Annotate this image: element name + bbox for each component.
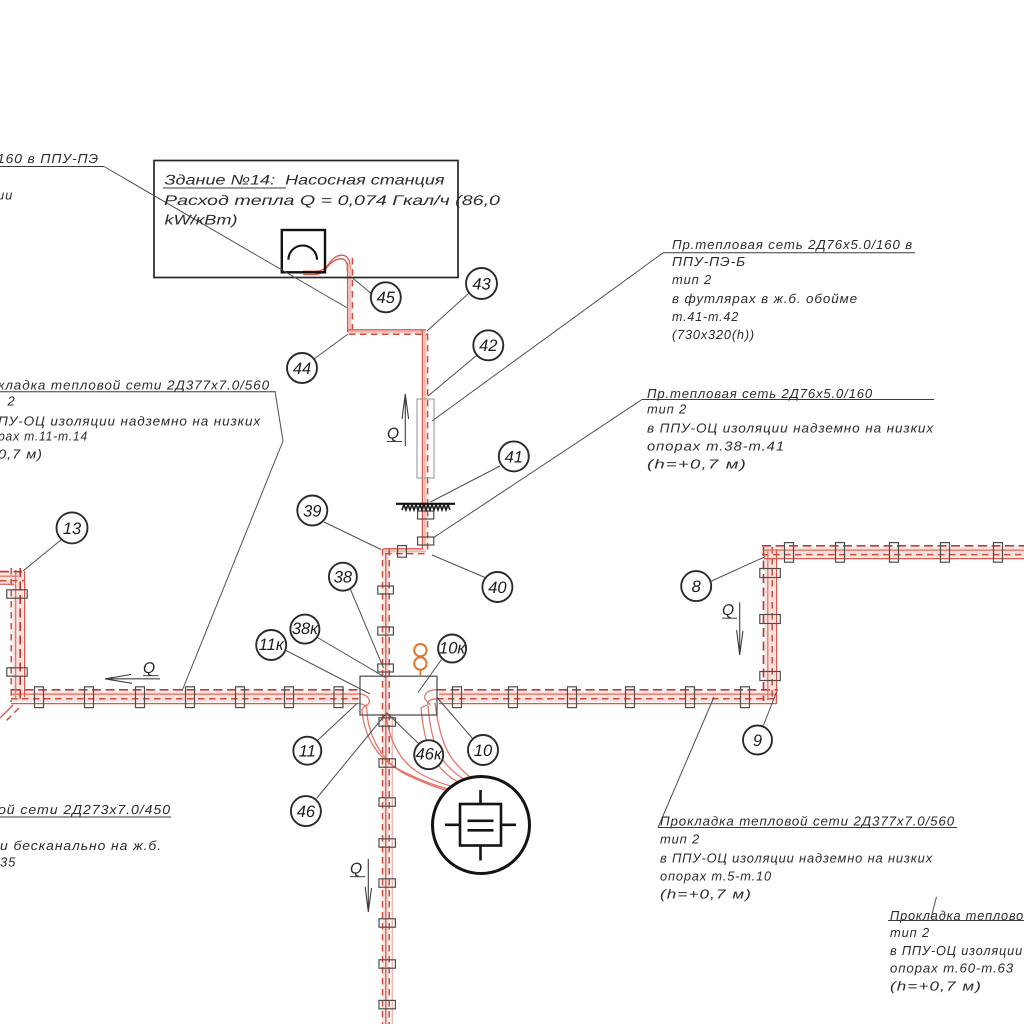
svg-text:44: 44 bbox=[293, 360, 311, 378]
svg-text:43: 43 bbox=[472, 275, 491, 293]
svg-text:38к: 38к bbox=[292, 620, 319, 638]
svg-text:41: 41 bbox=[505, 448, 523, 466]
svg-text:11: 11 bbox=[299, 743, 316, 761]
svg-text:10к: 10к bbox=[439, 640, 466, 658]
svg-text:ППУ-ПЭ-Б: ППУ-ПЭ-Б bbox=[672, 254, 746, 269]
svg-text:и бесканально на ж.б.: и бесканально на ж.б. bbox=[0, 838, 162, 853]
svg-text:в ППУ-ОЦ изоляции надземно на: в ППУ-ОЦ изоляции надземно на низких bbox=[660, 850, 933, 865]
svg-text:46к: 46к bbox=[416, 746, 443, 764]
svg-text:45: 45 bbox=[377, 289, 396, 307]
svg-text:тип 2: тип 2 bbox=[660, 832, 700, 847]
svg-text:опорах т.60-т.63: опорах т.60-т.63 bbox=[890, 960, 1014, 975]
svg-text:46: 46 bbox=[297, 803, 316, 821]
svg-text:0,7 м): 0,7 м) bbox=[0, 447, 43, 462]
svg-text:опорах т.5-т.10: опорах т.5-т.10 bbox=[660, 868, 772, 883]
svg-text:Q: Q bbox=[387, 426, 399, 443]
svg-text:Здание №14: Насосная станция: Здание №14: Насосная станция bbox=[165, 172, 446, 188]
svg-text:(h=+0,7 м): (h=+0,7 м) bbox=[647, 457, 747, 472]
svg-text:в ППУ-ОЦ изоляции надземно на: в ППУ-ОЦ изоляции надземно на низких bbox=[647, 421, 934, 436]
svg-text:вой сети 2Д273х7.0/450: вой сети 2Д273х7.0/450 bbox=[0, 802, 171, 817]
svg-text:кладка тепловой сети 2Д377х7.0: кладка тепловой сети 2Д377х7.0/560 bbox=[0, 378, 270, 393]
svg-text:опорах т.38-т.41: опорах т.38-т.41 bbox=[647, 439, 785, 454]
svg-text:38: 38 bbox=[334, 569, 353, 587]
svg-text:рах т.11-т.14: рах т.11-т.14 bbox=[0, 429, 88, 444]
svg-text:тип 2: тип 2 bbox=[647, 402, 687, 417]
svg-text:в футлярах в ж.б. обойме: в футлярах в ж.б. обойме bbox=[672, 291, 858, 306]
svg-text:(730х320(h)): (730х320(h)) bbox=[672, 327, 755, 342]
svg-text:в ППУ-ОЦ изоляции: в ППУ-ОЦ изоляции bbox=[890, 943, 1023, 958]
svg-text:Расход тепла Q = 0,074 Гкал/ч: Расход тепла Q = 0,074 Гкал/ч (86,0 bbox=[164, 192, 500, 208]
svg-text:Q: Q bbox=[722, 602, 734, 619]
svg-text:42: 42 bbox=[479, 337, 497, 355]
svg-text:11к: 11к bbox=[259, 636, 285, 654]
svg-text:10: 10 bbox=[474, 742, 493, 760]
svg-text:Прокладка тепловой сети 2Д377х: Прокладка тепловой сети 2Д377х7.0/560 bbox=[660, 814, 955, 829]
svg-text:8: 8 bbox=[692, 578, 702, 596]
svg-text:Q: Q bbox=[350, 861, 362, 878]
svg-text:т.41-т.42: т.41-т.42 bbox=[672, 309, 739, 324]
svg-text:(h=+0,7 м): (h=+0,7 м) bbox=[660, 886, 752, 901]
svg-text:2: 2 bbox=[7, 394, 16, 409]
svg-text:39: 39 bbox=[303, 502, 321, 520]
svg-text:35: 35 bbox=[0, 855, 16, 870]
svg-text:40: 40 bbox=[488, 579, 507, 597]
svg-text:(h=+0,7 м): (h=+0,7 м) bbox=[890, 978, 982, 993]
svg-text:Q: Q bbox=[143, 660, 155, 677]
svg-text:Пр.тепловая сеть 2Д76х5.0/160: Пр.тепловая сеть 2Д76х5.0/160 bbox=[647, 386, 873, 401]
svg-text:Пр.тепловая сеть 2Д76х5.0/160: Пр.тепловая сеть 2Д76х5.0/160 в bbox=[672, 237, 913, 252]
svg-text:160 в ППУ-ПЭ: 160 в ППУ-ПЭ bbox=[0, 151, 99, 166]
svg-text:тип 2: тип 2 bbox=[890, 925, 930, 940]
svg-text:kW/кВт): kW/кВт) bbox=[165, 212, 238, 228]
svg-text:13: 13 bbox=[63, 520, 82, 538]
svg-text:9: 9 bbox=[753, 732, 762, 750]
svg-text:ии: ии bbox=[0, 188, 13, 203]
svg-text:тип 2: тип 2 bbox=[672, 272, 712, 287]
svg-text:ПУ-ОЦ изоляции надземно на низ: ПУ-ОЦ изоляции надземно на низких bbox=[0, 414, 261, 429]
